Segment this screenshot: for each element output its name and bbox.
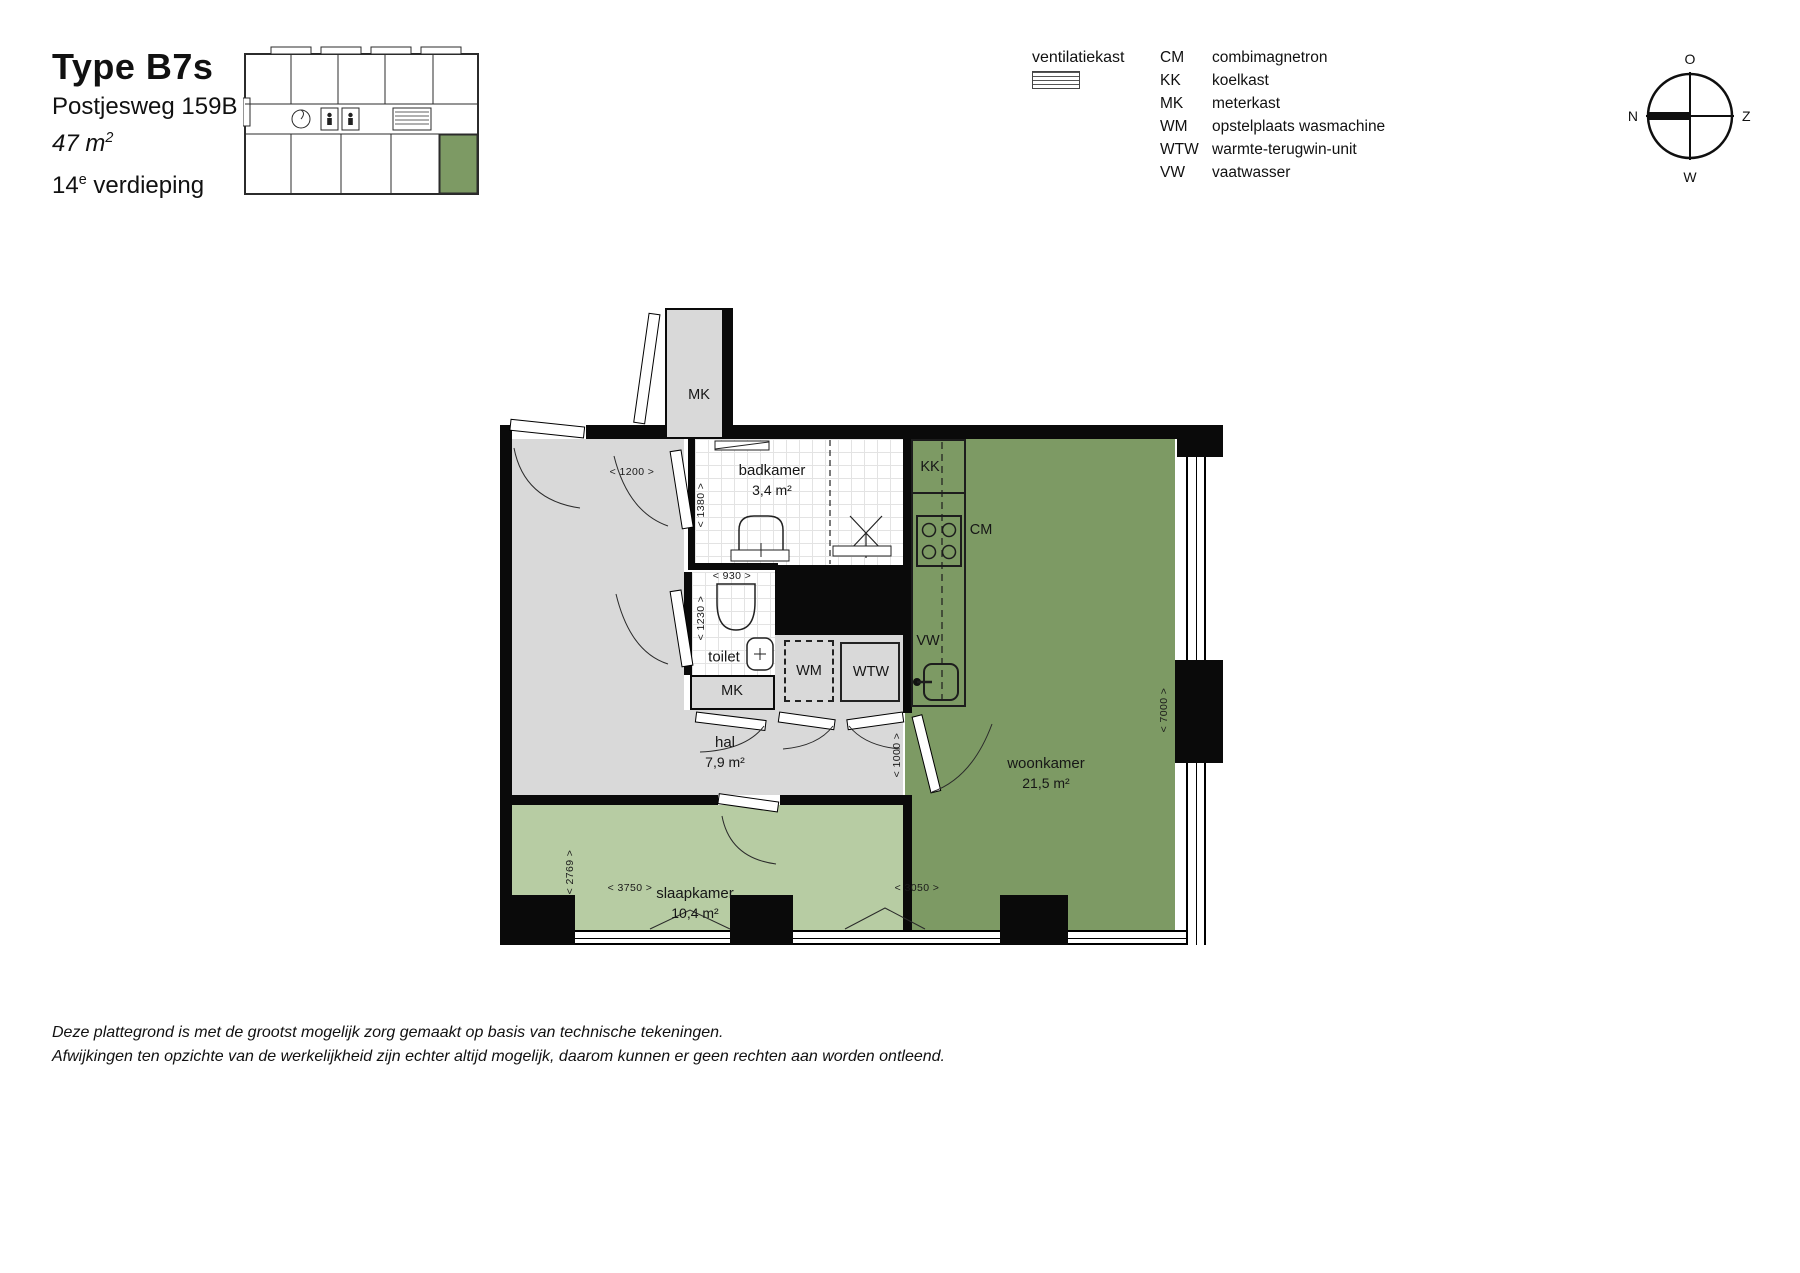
room-name: badkamer	[739, 461, 806, 481]
mk-top-door-leaf	[634, 313, 660, 423]
cooktop	[917, 516, 961, 566]
legend-text: meterkast	[1212, 95, 1280, 112]
legend-row: KKkoelkast	[1160, 72, 1269, 90]
label-kk: KK	[920, 459, 939, 475]
label-toilet: toilet	[708, 647, 740, 667]
dim-slaapkamer-width: < 3750 >	[608, 882, 653, 894]
room-area: 3,4 m²	[739, 481, 806, 499]
label-slaapkamer: slaapkamer 10,4 m²	[656, 884, 734, 922]
label-wm: WM	[796, 663, 822, 679]
compass-west: W	[1683, 169, 1697, 185]
legend-abbr: CM	[1160, 49, 1212, 67]
disclaimer-line-2: Afwijkingen ten opzichte van de werkelij…	[52, 1048, 945, 1066]
legend-abbr: WTW	[1160, 141, 1212, 159]
plan-fixtures	[500, 300, 1230, 960]
legend-row: MKmeterkast	[1160, 95, 1280, 113]
toilet-bowl	[717, 584, 755, 630]
mk-hal-door-leaf	[695, 712, 766, 730]
room-name: hal	[705, 733, 745, 753]
label-cm: CM	[970, 522, 993, 538]
highlighted-unit	[440, 135, 477, 193]
kitchen-counter	[912, 440, 965, 706]
address-line: Postjesweg 159B	[52, 93, 237, 121]
label-mk-top: MK	[688, 387, 710, 403]
wm-door-leaf	[778, 712, 835, 730]
legend-text: koelkast	[1212, 72, 1269, 89]
label-wtw: WTW	[853, 664, 889, 680]
disclaimer-line-1: Deze plattegrond is met de grootst mogel…	[52, 1024, 724, 1042]
floor-plan: MK badkamer 3,4 m² toilet MK WM WTW KK C…	[500, 300, 1230, 960]
floor-sup: e	[79, 172, 87, 188]
room-area: 10,4 m²	[656, 904, 734, 922]
window-swing-woonkamer	[845, 908, 925, 929]
area-value: 47 m	[52, 130, 105, 157]
shower-drain	[833, 546, 891, 556]
compass-south: Z	[1742, 108, 1751, 124]
legend-text: vaatwasser	[1212, 164, 1290, 181]
label-hal: hal 7,9 m²	[705, 733, 745, 771]
ventilation-icon	[1032, 71, 1080, 89]
legend-row: WTWwarmte-terugwin-unit	[1160, 141, 1357, 159]
dim-entry: < 1200 >	[610, 466, 655, 478]
dim-woonkamer-depth: < 7000 >	[1158, 688, 1170, 733]
compass-icon: O Z W N	[1612, 40, 1767, 195]
floor-line: 14e verdieping	[52, 172, 204, 200]
slaapkamer-door-leaf	[718, 794, 779, 812]
room-name: woonkamer	[1007, 754, 1085, 774]
legend-row: VWvaatwasser	[1160, 164, 1290, 182]
dim-woonkamer-width: < 3050 >	[895, 882, 940, 894]
bathroom-fixtures	[715, 440, 891, 564]
dim-toilet-width: < 930 >	[713, 570, 751, 582]
dim-toilet-depth: < 1230 >	[695, 596, 707, 641]
legend-abbr: VW	[1160, 164, 1212, 182]
floor-label: verdieping	[87, 172, 204, 199]
legend-text: opstelplaats wasmachine	[1212, 118, 1385, 135]
legend-abbr: MK	[1160, 95, 1212, 113]
legend-text: warmte-terugwin-unit	[1212, 141, 1357, 158]
room-area: 21,5 m²	[1007, 774, 1085, 792]
wtw-door-leaf	[847, 712, 904, 730]
building-overview	[243, 42, 480, 200]
label-mk-hal: MK	[721, 683, 743, 699]
kitchen-fixtures	[912, 440, 965, 706]
dim-badkamer-depth: < 1380 >	[695, 483, 707, 528]
legend-row: WMopstelplaats wasmachine	[1160, 118, 1385, 136]
ventilation-label: ventilatiekast	[1032, 49, 1125, 67]
toilet-door-leaf	[670, 590, 693, 667]
woonkamer-door-leaf	[912, 715, 941, 793]
compass-north: N	[1628, 108, 1638, 124]
legend-text: combimagnetron	[1212, 49, 1327, 66]
badkamer-door-leaf	[670, 450, 693, 529]
floorplan-page: Type B7s Postjesweg 159B 47 m2 14e verdi…	[0, 0, 1800, 1273]
label-badkamer: badkamer 3,4 m²	[739, 461, 806, 499]
label-vw: VW	[916, 633, 939, 649]
legend-abbr: WM	[1160, 118, 1212, 136]
dim-slaapkamer-depth: < 2769 >	[564, 850, 576, 895]
legend-abbr: KK	[1160, 72, 1212, 90]
compass-east: O	[1685, 51, 1696, 67]
page-title: Type B7s	[52, 46, 213, 88]
area-sup: 2	[105, 130, 113, 146]
entry-door-leaf	[510, 419, 585, 438]
label-woonkamer: woonkamer 21,5 m²	[1007, 754, 1085, 792]
area-line: 47 m2	[52, 130, 113, 158]
legend-row: CMcombimagnetron	[1160, 49, 1327, 67]
floor-value: 14	[52, 172, 79, 199]
dim-hal-passage: < 1000 >	[891, 733, 903, 778]
room-name: slaapkamer	[656, 884, 734, 904]
room-area: 7,9 m²	[705, 753, 745, 771]
